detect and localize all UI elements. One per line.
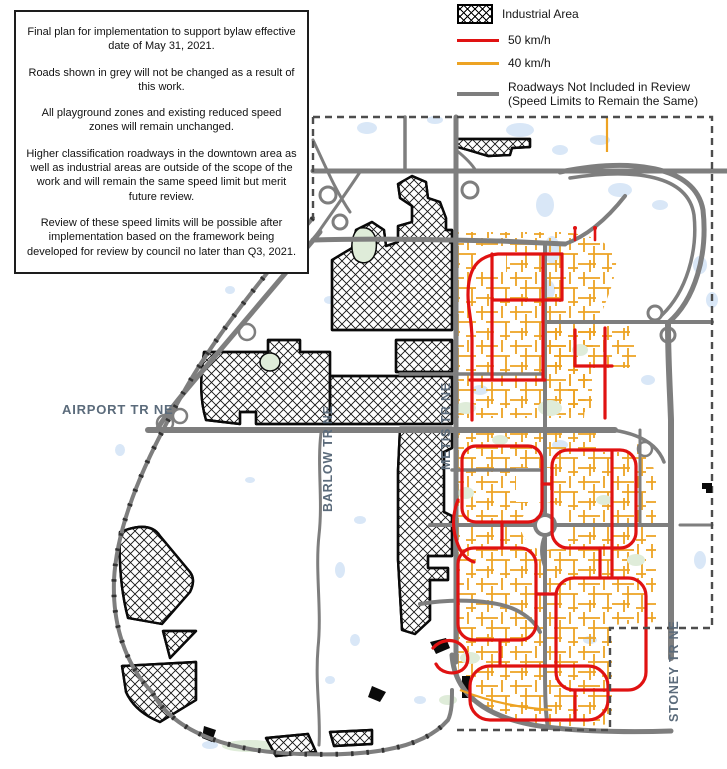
legend-label: Roadways Not Included in Review (Speed L… bbox=[508, 80, 698, 109]
note-paragraph: All playground zones and existing reduce… bbox=[26, 106, 297, 135]
note-paragraph: Roads shown in grey will not be changed … bbox=[26, 66, 297, 95]
road-label-barlow-tr-ne: BARLOW TR NE bbox=[321, 405, 335, 512]
legend-item-50kmh: 50 km/h bbox=[457, 33, 723, 47]
legend-label: Industrial Area bbox=[502, 7, 579, 21]
note-paragraph: Final plan for implementation to support… bbox=[26, 25, 297, 54]
map-marker-glyph bbox=[702, 483, 712, 493]
speed-limit-review-map-page: AIRPORT TR NE BARLOW TR NE METIS TR NE S… bbox=[0, 0, 727, 769]
road-label-metis-tr-ne: METIS TR NE bbox=[439, 382, 453, 470]
legend-item-industrial-area: Industrial Area bbox=[457, 4, 723, 24]
note-paragraph: Higher classification roadways in the do… bbox=[26, 147, 297, 204]
legend-item-not-included: Roadways Not Included in Review (Speed L… bbox=[457, 80, 723, 109]
legend-item-40kmh: 40 km/h bbox=[457, 56, 723, 70]
legend-label: 40 km/h bbox=[508, 56, 551, 70]
road-label-airport-tr-ne: AIRPORT TR NE bbox=[62, 402, 174, 417]
forty-kmh-line-icon bbox=[457, 62, 499, 65]
grey-roadway-line-icon bbox=[457, 92, 499, 96]
road-label-stoney-tr-ne: STONEY TR NE bbox=[667, 620, 681, 722]
fifty-kmh-line-icon bbox=[457, 39, 499, 42]
legend-label-line2: (Speed Limits to Remain the Same) bbox=[508, 94, 698, 108]
legend-label-line1: Roadways Not Included in Review bbox=[508, 80, 690, 94]
legend-label: 50 km/h bbox=[508, 33, 551, 47]
industrial-area-swatch-icon bbox=[457, 4, 493, 24]
map-legend: Industrial Area 50 km/h 40 km/h Roadways… bbox=[457, 4, 723, 118]
plan-notes-box: Final plan for implementation to support… bbox=[14, 10, 309, 274]
note-paragraph: Review of these speed limits will be pos… bbox=[26, 216, 297, 259]
